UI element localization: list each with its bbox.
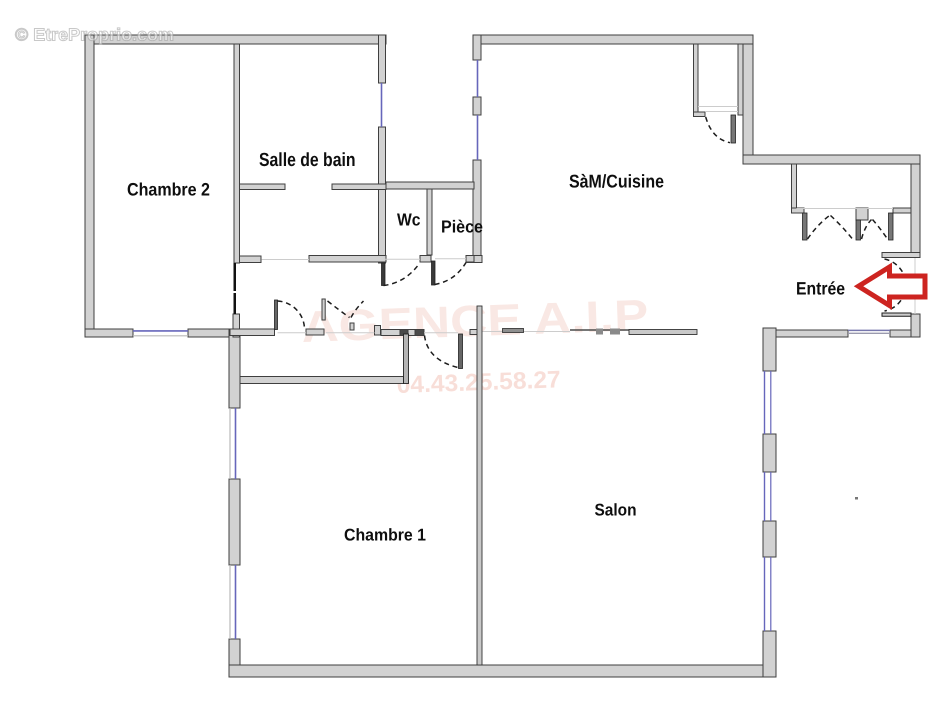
svg-text:Salon: Salon [595, 501, 637, 520]
svg-text:Chambre 2: Chambre 2 [127, 180, 210, 200]
svg-text:Wc: Wc [397, 210, 421, 230]
svg-text:Pièce: Pièce [441, 217, 483, 237]
svg-text:Salle de bain: Salle de bain [259, 150, 356, 171]
svg-text:Entrée: Entrée [796, 279, 845, 299]
svg-text:Chambre 1: Chambre 1 [344, 526, 426, 545]
svg-text:© EtreProprio.com: © EtreProprio.com [15, 25, 174, 45]
svg-text:SàM/Cuisine: SàM/Cuisine [569, 171, 664, 192]
